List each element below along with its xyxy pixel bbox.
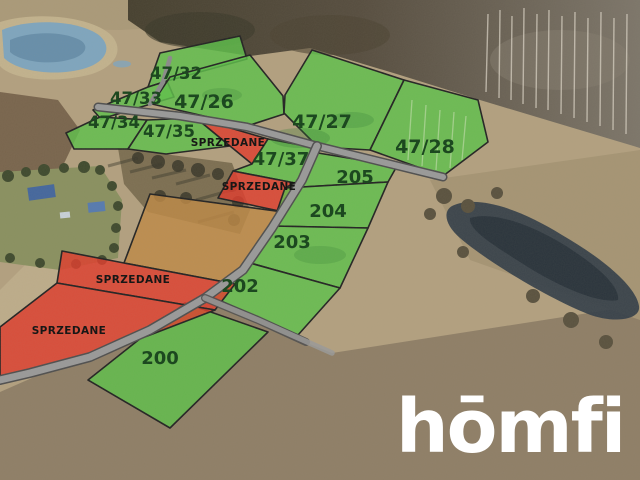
aerial-photo: 47/32 47/33 47/34 47/35 47/26 47/27 47/2… [0, 0, 640, 480]
homfi-logo: hōmfi [396, 384, 624, 470]
